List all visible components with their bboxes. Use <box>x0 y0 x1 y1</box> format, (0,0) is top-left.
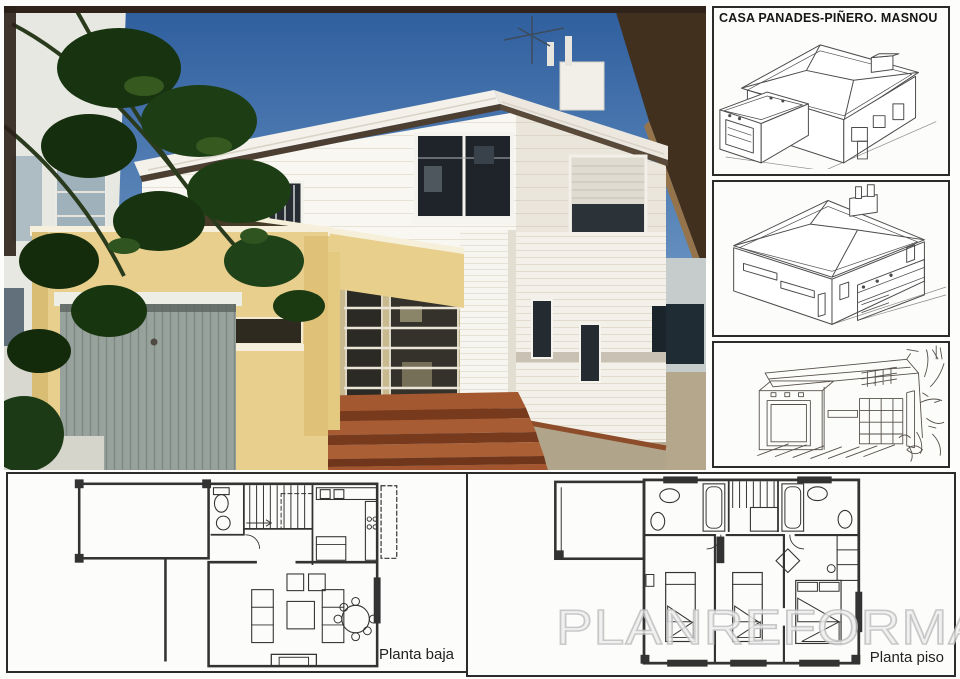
upper-floor-plan <box>468 474 954 675</box>
ground-floor-plan <box>8 474 466 671</box>
photo-edge-top <box>4 6 706 13</box>
project-title: CASA PANADES-PIÑERO. MASNOU <box>714 8 948 25</box>
title-and-axonometric-panel: CASA PANADES-PIÑERO. MASNOU <box>712 6 950 176</box>
axonometric-view-1 <box>714 25 948 169</box>
upper-floor-label: Planta piso <box>870 649 944 666</box>
upper-floor-panel: Planta piso <box>466 472 956 677</box>
perspective-panel <box>712 341 950 468</box>
perspective-sketch <box>714 343 948 466</box>
ground-floor-label: Planta baja <box>379 646 454 663</box>
ground-floor-panel: Planta baja <box>6 472 468 673</box>
photo-edge-left <box>4 6 16 256</box>
house-photo <box>4 6 706 470</box>
presentation-board: CASA PANADES-PIÑERO. MASNOU <box>0 0 960 679</box>
photo-panel <box>4 6 706 470</box>
axonometric-view-2 <box>714 182 948 335</box>
axonometric-panel-2 <box>712 180 950 337</box>
